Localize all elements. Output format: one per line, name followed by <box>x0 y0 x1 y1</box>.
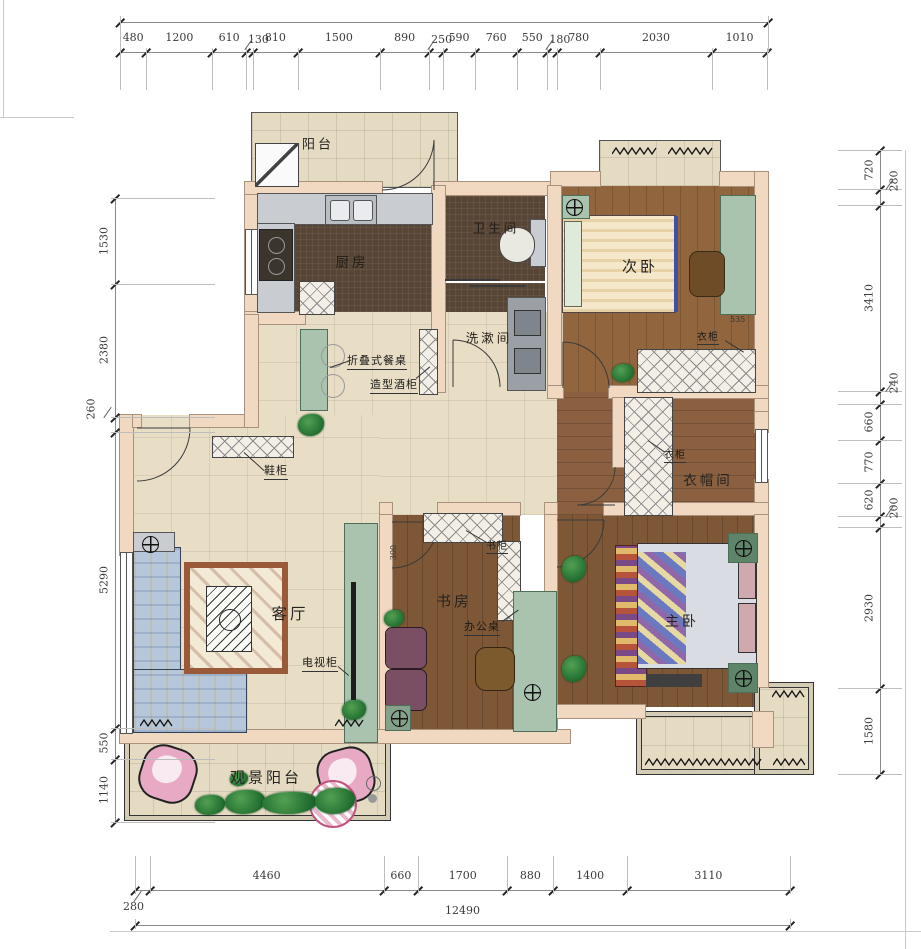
dim-ext <box>135 919 136 929</box>
dim-ext <box>838 774 902 775</box>
dim-value: 1400 <box>576 869 604 882</box>
dim-value: 260 <box>85 398 98 419</box>
dim-ext <box>767 48 768 90</box>
dim-ext <box>384 856 385 894</box>
dim-ext <box>838 150 902 151</box>
dim-value: 660 <box>390 869 411 882</box>
dim-ext <box>507 856 508 894</box>
dim-value: 2380 <box>98 336 111 364</box>
dim-ext <box>253 48 254 90</box>
dim-value: 550 <box>522 31 543 44</box>
dim-ext <box>838 483 902 484</box>
dim-line <box>880 150 881 774</box>
dim-ext <box>246 48 247 90</box>
dim-ext <box>150 856 151 894</box>
dim-ext <box>838 440 902 441</box>
dim-ext <box>790 856 791 894</box>
floor-plan-canvas: 阳台 厨房 卫生间 洗漱间 次卧 衣帽间 客厅 书房 主卧 观景阳台 折叠式餐桌… <box>0 0 921 949</box>
dim-value: 2030 <box>642 31 670 44</box>
dim-ext <box>768 16 769 52</box>
dim-ext <box>111 728 215 729</box>
dim-value: 590 <box>449 31 470 44</box>
dim-ext <box>838 404 902 405</box>
dim-ext <box>111 284 215 285</box>
dim-ext <box>111 198 215 199</box>
dimension-layer: 4801200610130810150089025059076055018078… <box>0 0 921 949</box>
dim-value: 12490 <box>445 904 480 917</box>
dim-ext <box>135 856 136 894</box>
dim-ext <box>111 432 215 433</box>
dim-value: 3110 <box>694 869 722 882</box>
dim-ext <box>298 48 299 90</box>
dim-value: 1700 <box>449 869 477 882</box>
dim-value: 240 <box>888 373 901 394</box>
dim-ext <box>838 688 902 689</box>
dim-ext <box>517 48 518 90</box>
dim-ext <box>557 48 558 90</box>
dim-ext <box>120 48 121 90</box>
dim-ext <box>380 48 381 90</box>
dim-ext <box>146 48 147 90</box>
dim-value: 660 <box>863 412 876 433</box>
dim-ext <box>838 527 902 528</box>
dim-value: 1500 <box>325 31 353 44</box>
dim-value: 2930 <box>863 594 876 622</box>
dim-ext <box>838 205 902 206</box>
dim-ext <box>443 48 444 90</box>
dim-ext <box>547 48 548 90</box>
dim-value: 620 <box>863 489 876 510</box>
dim-value: 480 <box>123 31 144 44</box>
dim-value: 810 <box>265 31 286 44</box>
dim-line <box>120 22 768 23</box>
dim-ext <box>627 856 628 894</box>
dim-ext <box>120 16 121 52</box>
dim-value: 550 <box>98 733 111 754</box>
dim-line <box>135 925 790 926</box>
dim-ext <box>712 48 713 90</box>
dim-ext <box>429 48 430 90</box>
dim-ext <box>790 919 791 929</box>
dim-value: 880 <box>520 869 541 882</box>
dim-ext <box>212 48 213 90</box>
dim-value: 1580 <box>863 717 876 745</box>
dim-value: 1200 <box>165 31 193 44</box>
dim-ext <box>600 48 601 90</box>
dim-ext <box>418 856 419 894</box>
dim-ext <box>111 822 215 823</box>
dim-line <box>135 890 790 891</box>
dim-value: 1010 <box>726 31 754 44</box>
dim-value: 720 <box>863 159 876 180</box>
dim-value: 5290 <box>98 566 111 594</box>
dim-value: 890 <box>394 31 415 44</box>
dim-ext <box>553 856 554 894</box>
dim-ext <box>475 48 476 90</box>
dim-ext <box>111 759 215 760</box>
dim-value: 4460 <box>253 869 281 882</box>
dim-value: 770 <box>863 451 876 472</box>
dim-value: 780 <box>568 31 589 44</box>
dim-value: 1530 <box>98 227 111 255</box>
dim-ext <box>111 417 215 418</box>
dim-value: 1140 <box>98 776 111 804</box>
dim-value: 3410 <box>863 284 876 312</box>
dim-value: 760 <box>486 31 507 44</box>
dim-value: 610 <box>219 31 240 44</box>
